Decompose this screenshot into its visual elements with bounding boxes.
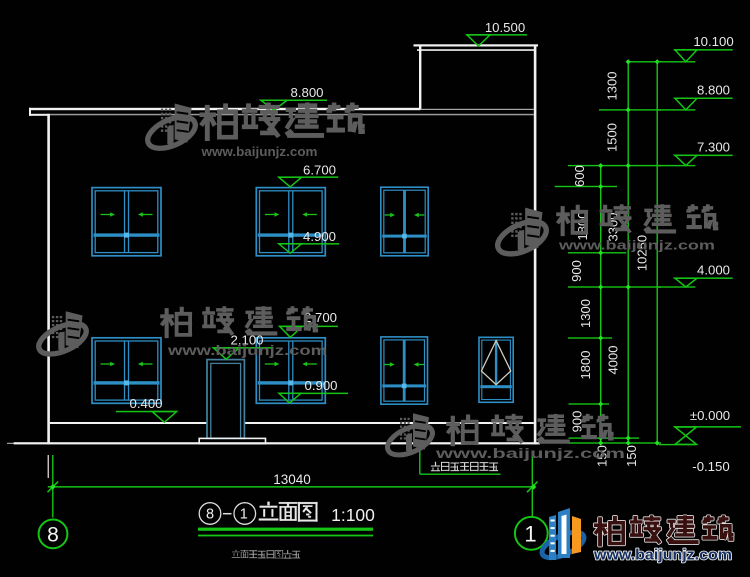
svg-text:8: 8 [47, 524, 59, 547]
svg-text:6.700: 6.700 [303, 162, 336, 177]
svg-text:-0.150: -0.150 [692, 459, 729, 474]
svg-text:4000: 4000 [606, 346, 621, 375]
svg-text:www.baijunjz.com: www.baijunjz.com [558, 238, 715, 253]
svg-text:1500: 1500 [605, 123, 620, 152]
svg-text:10.100: 10.100 [693, 34, 733, 49]
svg-text:1: 1 [240, 507, 248, 523]
svg-text:±0.000: ±0.000 [690, 408, 730, 423]
svg-text:0.900: 0.900 [304, 378, 337, 393]
svg-text:www.baijunjz.com: www.baijunjz.com [593, 548, 732, 564]
svg-text:10.500: 10.500 [485, 20, 525, 35]
svg-text:13040: 13040 [273, 472, 311, 487]
svg-text:1300: 1300 [605, 72, 620, 101]
svg-text:www.baijunjz.com: www.baijunjz.com [434, 446, 625, 461]
svg-text:150: 150 [624, 445, 639, 467]
svg-text:0.400: 0.400 [129, 396, 162, 411]
svg-text:4.000: 4.000 [697, 263, 730, 278]
svg-text:www.baijunjz.com: www.baijunjz.com [200, 145, 317, 159]
svg-text:900: 900 [569, 260, 584, 282]
svg-text:1300: 1300 [578, 299, 593, 328]
svg-text:600: 600 [572, 165, 587, 187]
svg-text:8: 8 [206, 507, 214, 523]
svg-text:1:100: 1:100 [331, 505, 375, 525]
svg-text:8.800: 8.800 [290, 85, 323, 100]
svg-text:7.300: 7.300 [697, 140, 730, 155]
svg-text:8.800: 8.800 [697, 82, 730, 97]
svg-text:1800: 1800 [578, 351, 593, 380]
svg-text:4.900: 4.900 [303, 229, 336, 244]
svg-text:www.baijunjz.com: www.baijunjz.com [167, 343, 327, 358]
svg-text:1: 1 [524, 522, 536, 547]
